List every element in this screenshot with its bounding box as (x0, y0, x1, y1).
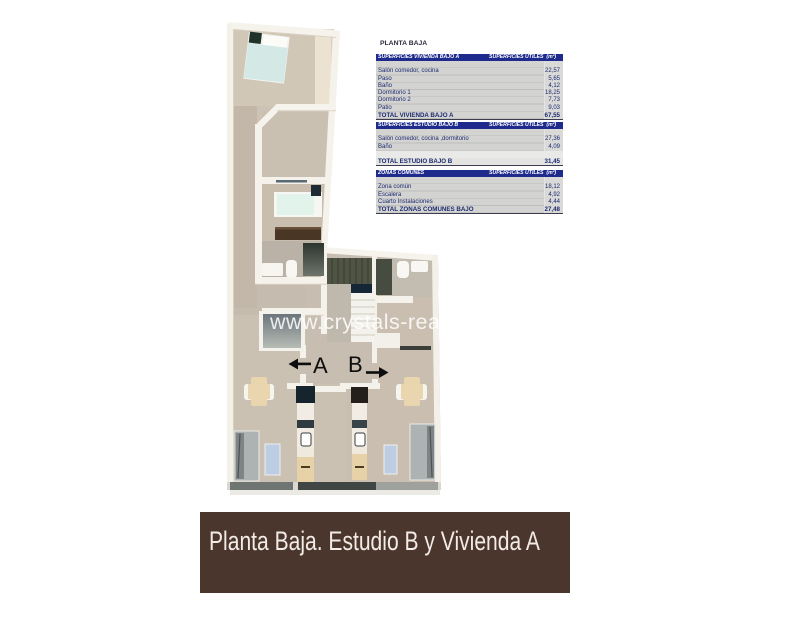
svg-text:B: B (348, 352, 363, 377)
svg-text:A: A (313, 353, 328, 378)
svg-text:www.crystals-realestate.com: www.crystals-realestate.com (269, 310, 556, 334)
